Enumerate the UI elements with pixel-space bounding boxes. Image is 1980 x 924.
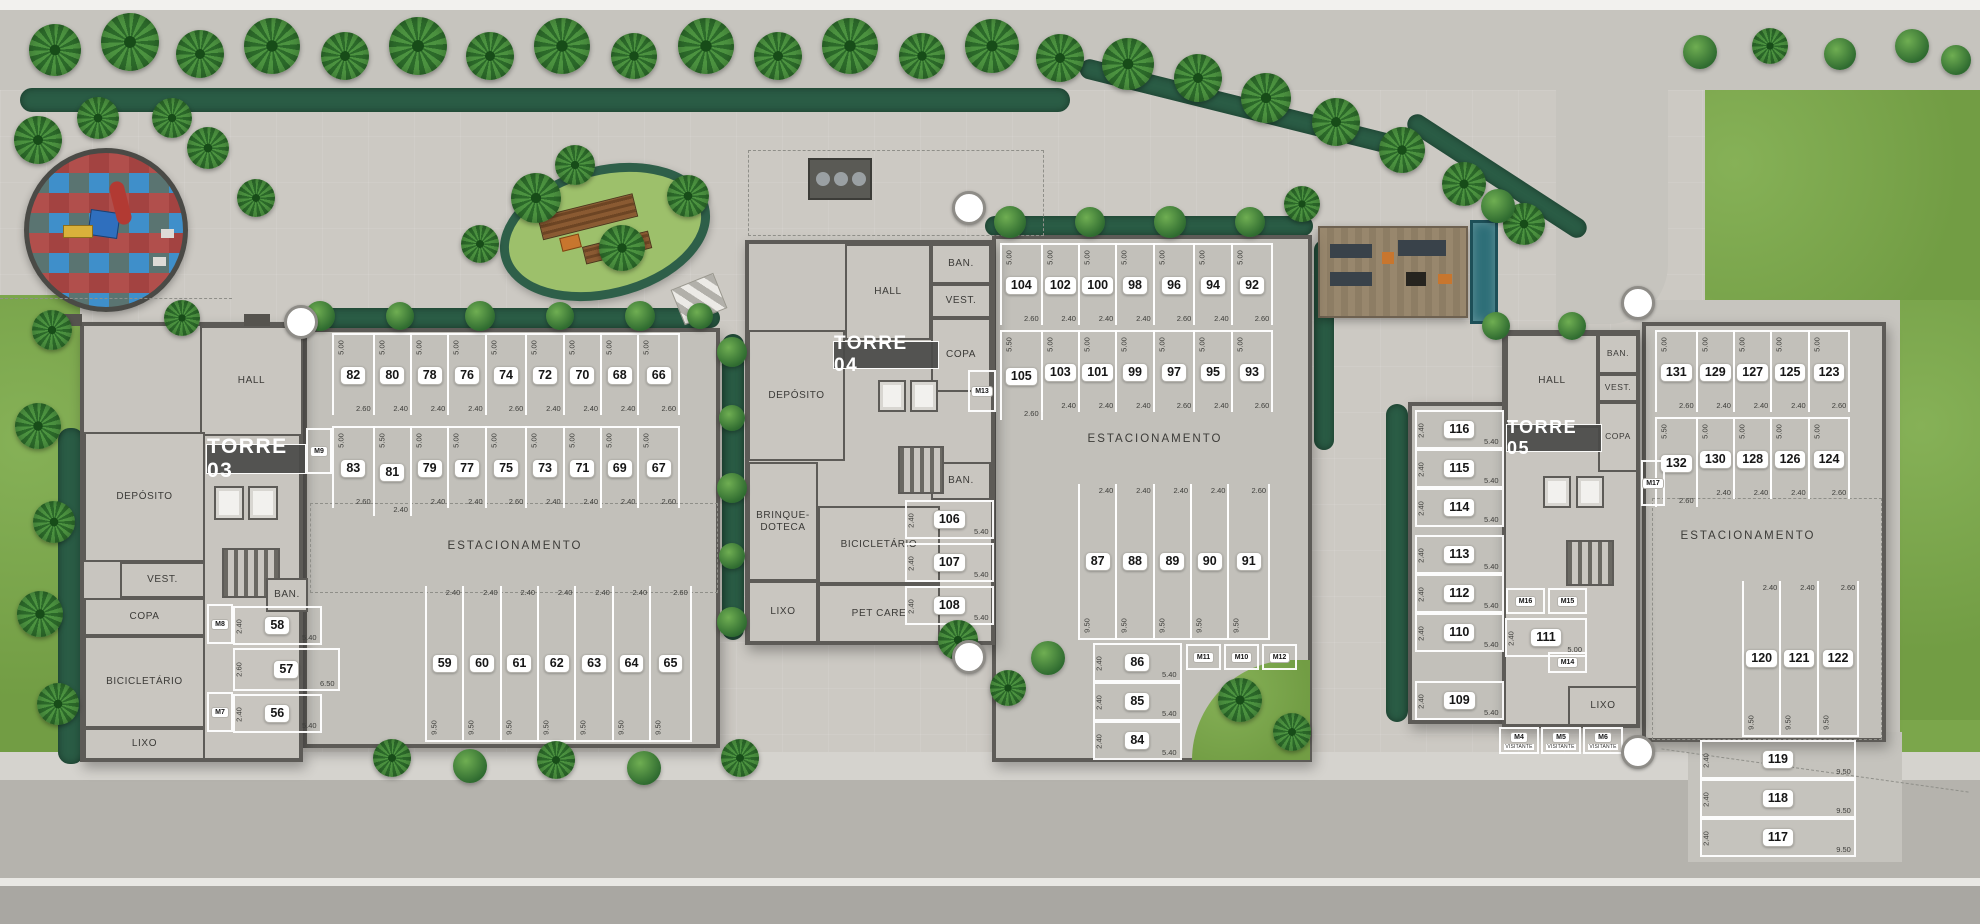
stall-depth-dim: 5.00 [1045,243,1054,273]
stall-width-dim: 2.60 [1255,401,1270,410]
stall-width-dim: 2.40 [1716,488,1731,497]
stall-height-dim: 2.40 [1417,493,1426,523]
palm-tree-icon [1241,73,1291,123]
parking-stall-91: 919.502.60 [1227,484,1270,640]
stall-depth-dim: 5.00 [1700,330,1709,360]
parking-stall-93: 935.002.60 [1231,330,1274,412]
parking-stall-98: 985.002.40 [1115,243,1154,325]
parking-stall-61: 619.502.40 [500,586,539,742]
stall-width-dim: 2.40 [1800,583,1815,592]
parking-stall-118: 1182.409.50 [1700,779,1856,818]
stall-width-dim: 2.40 [1763,583,1778,592]
parking-stall-80: 805.002.40 [373,333,412,415]
parking-stall-63: 639.502.40 [574,586,613,742]
south-road-edge [0,886,1980,924]
stall-depth-dim: 5.00 [1775,417,1784,447]
stall-length-dim: 5.40 [1484,515,1499,524]
stall-number: 130 [1699,450,1732,469]
parking-stall-102: 1025.002.40 [1041,243,1080,325]
parking-stall-86: 862.405.40 [1093,643,1182,682]
stall-depth-dim: 5.00 [605,333,614,363]
stall-number: 99 [1122,363,1148,382]
stall-depth-dim: 9.50 [1747,707,1756,737]
bush-icon [1824,38,1856,70]
parking-stall-64: 649.502.40 [612,586,651,742]
parking-stall-70: 705.002.40 [563,333,602,415]
stall-number: 113 [1443,545,1475,564]
moto-stall-number: M7 [211,707,229,718]
stall-number: 60 [469,654,495,673]
bush-icon [687,303,713,329]
room-label: BAN. [1607,349,1629,359]
sofa-icon [1398,240,1446,256]
stall-depth-dim: 5.00 [1198,243,1207,273]
visitante-label: VISITANTE [1504,744,1533,750]
circle-marker [1621,735,1655,769]
palm-tree-icon [822,18,878,74]
stall-width-dim: 2.60 [356,497,371,506]
parking-stall-117: 1172.409.50 [1700,818,1856,857]
stall-number: 57 [273,660,299,679]
t03-elevator [214,486,244,520]
moto-stall-M16: M16 [1506,588,1545,614]
stall-number: 74 [493,366,519,385]
stall-depth-dim: 5.00 [489,333,498,363]
room-label: VEST. [147,574,178,586]
t04-elevator [910,380,938,412]
bush-icon [717,607,747,637]
stall-length-dim: 5.40 [1484,562,1499,571]
room-label: HALL [874,286,901,298]
stall-length-dim: 9.50 [1836,806,1851,815]
palm-tree-icon [237,179,275,217]
stall-depth-dim: 5.00 [415,333,424,363]
bush-icon [717,337,747,367]
stall-height-dim: 2.40 [907,548,916,578]
t04-vest: VEST. [931,284,991,318]
parking-stall-68: 685.002.40 [600,333,639,415]
parking-stall-106: 1062.405.40 [905,500,994,539]
moto-stall-M8: M8 [207,604,233,644]
stall-depth-dim: 5.00 [1045,330,1054,360]
stall-depth-dim: 9.50 [467,712,476,742]
parking-stall-82: 825.002.60 [332,333,375,415]
stall-number: 126 [1774,450,1807,469]
stall-depth-dim: 5.00 [415,426,424,456]
water-feature [1470,220,1498,324]
stall-width-dim: 2.40 [621,497,636,506]
visitante-label: VISITANTE [1588,744,1617,750]
stall-number: 64 [619,654,645,673]
bench-icon [161,229,174,238]
stall-depth-dim: 5.00 [1157,330,1166,360]
parking-stall-107: 1072.405.40 [905,543,994,582]
stall-number: 78 [417,366,443,385]
stall-width-dim: 2.40 [1754,488,1769,497]
stall-height-dim: 2.40 [1417,454,1426,484]
stall-width-dim: 2.40 [1099,486,1114,495]
room-label: COPA [1605,432,1631,442]
palm-tree-icon [667,175,709,217]
stall-height-dim: 2.40 [1702,745,1711,775]
lounger-icon [1438,274,1452,284]
parking-stall-67: 675.002.60 [637,426,680,508]
parking-stall-71: 715.002.40 [563,426,602,508]
palm-tree-icon [1102,38,1154,90]
stall-number: 70 [569,366,595,385]
stall-number: 98 [1122,276,1148,295]
parking-stall-110: 1102.405.40 [1415,613,1504,652]
parking-stall-101: 1015.002.40 [1078,330,1117,412]
t03-vest: VEST. [120,562,205,598]
stall-width-dim: 2.40 [1099,314,1114,323]
palm-tree-icon [599,225,645,271]
stall-depth-dim: 5.00 [567,333,576,363]
parking-stall-116: 1162.405.40 [1415,410,1504,449]
moto-stall-M12: M12 [1262,644,1297,670]
moto-stall-number: M15 [1557,596,1579,607]
stall-number: 86 [1124,653,1150,672]
parking-stall-58: 582.405.40 [233,606,322,645]
moto-stall-M13: M13 [968,370,996,412]
parking-stall-85: 852.405.40 [1093,682,1182,721]
play-item-icon [559,233,582,251]
stall-width-dim: 2.60 [1177,401,1192,410]
palm-tree-icon [965,19,1019,73]
palm-tree-icon [511,173,561,223]
stall-number: 89 [1159,552,1185,571]
bush-icon [1031,641,1065,675]
stall-width-dim: 2.40 [1211,486,1226,495]
bush-icon [1482,312,1510,340]
moto-stall-M17: M17 [1641,460,1665,506]
stall-depth-dim: 5.00 [1083,243,1092,273]
palm-tree-icon [678,18,734,74]
stall-number: 67 [646,459,672,478]
stall-width-dim: 2.40 [431,404,446,413]
moto-stall-M5: M5VISITANTE [1541,727,1581,754]
stall-depth-dim: 9.50 [1120,610,1129,640]
palm-tree-icon [244,18,300,74]
room-label: LIXO [770,606,795,618]
parking-stall-123: 1235.002.60 [1808,330,1851,412]
parking-stall-122: 1229.502.60 [1817,581,1860,737]
palm-tree-icon [555,145,595,185]
stall-depth-dim: 5.00 [567,426,576,456]
table-icon [1406,272,1426,286]
parking-stall-57: 572.606.50 [233,648,340,691]
stall-number: 77 [454,459,480,478]
parking-stall-78: 785.002.40 [410,333,449,415]
stall-number: 103 [1044,363,1077,382]
palm-tree-icon [152,98,192,138]
stall-depth-dim: 9.50 [542,712,551,742]
stall-depth-dim: 5.00 [337,426,346,456]
stall-number: 76 [454,366,480,385]
room-label: DEPÓSITO [116,491,172,503]
stall-width-dim: 2.40 [1716,401,1731,410]
stall-number: 66 [646,366,672,385]
hedge-strip [300,308,720,328]
stall-number: 73 [532,459,558,478]
tower-name: TORRE 05 [1507,417,1601,459]
parking-stall-96: 965.002.60 [1153,243,1196,325]
room-label: DEPÓSITO [768,390,824,402]
stall-height-dim: 2.40 [1095,687,1104,717]
t03-lixo: LIXO [84,728,205,760]
stall-width-dim: 2.40 [1136,314,1151,323]
stall-number: 80 [379,366,405,385]
stall-depth-dim: 5.00 [1157,243,1166,273]
sofa-icon [1330,272,1372,286]
moto-stall-number: M17 [1642,478,1664,489]
stall-depth-dim: 5.00 [1120,330,1129,360]
stall-number: 68 [607,366,633,385]
stall-width-dim: 2.60 [509,404,524,413]
moto-stall-number: M12 [1269,652,1291,663]
palm-tree-icon [534,18,590,74]
stall-width-dim: 2.40 [546,404,561,413]
stall-depth-dim: 5.00 [1775,330,1784,360]
palm-tree-icon [176,30,224,78]
palm-tree-icon [1218,678,1262,722]
stall-number: 116 [1443,420,1475,439]
moto-stall-number: M8 [211,619,229,630]
stall-height-dim: 2.40 [1417,618,1426,648]
stall-width-dim: 2.40 [393,505,408,514]
stall-depth-dim: 9.50 [1195,610,1204,640]
moto-stall-M9: M9 [306,428,332,474]
stall-number: 90 [1197,552,1223,571]
stall-number: 62 [544,654,570,673]
room-label: BICICLETÁRIO [106,676,183,688]
stall-number: 84 [1124,731,1150,750]
palm-tree-icon [1442,162,1486,206]
parking-stall-77: 775.002.40 [447,426,486,508]
stall-length-dim: 9.50 [1836,767,1851,776]
stall-number: 91 [1236,552,1262,571]
t03-deposito: DEPÓSITO [84,432,205,562]
stall-width-dim: 2.40 [1099,401,1114,410]
t05-ban: BAN. [1598,334,1638,374]
stall-width-dim: 2.40 [546,497,561,506]
stall-width-dim: 2.40 [583,404,598,413]
palm-tree-icon [754,32,802,80]
stall-depth-dim: 5.00 [642,333,651,363]
t04-elevator [878,380,906,412]
parking-stall-76: 765.002.40 [447,333,486,415]
stall-depth-dim: 5.00 [1083,330,1092,360]
bush-icon [625,301,655,331]
parking-stall-119: 1192.409.50 [1700,740,1856,779]
parking-stall-60: 609.502.40 [462,586,501,742]
stall-width-dim: 2.40 [1754,401,1769,410]
stall-depth-dim: 5.00 [530,426,539,456]
stall-depth-dim: 9.50 [430,712,439,742]
bush-icon [1075,207,1105,237]
t03-tower-label: TORRE 03 [206,444,306,474]
stall-length-dim: 5.40 [1484,640,1499,649]
parking-stall-66: 665.002.60 [637,333,680,415]
palm-tree-icon [101,13,159,71]
moto-stall-number: M14 [1557,657,1579,668]
stall-number: 79 [417,459,443,478]
t04-deposito: DEPÓSITO [748,330,845,461]
t05-elevator [1576,476,1604,508]
stall-width-dim: 2.40 [468,497,483,506]
stall-number: 128 [1736,450,1769,469]
moto-stall-number: M5 [1552,732,1570,743]
stall-number: 81 [379,463,405,482]
room-label: COPA [946,349,976,361]
stall-height-dim: 2.40 [907,591,916,621]
stall-height-dim: 2.40 [1417,686,1426,716]
stall-depth-dim: 5.00 [642,426,651,456]
palm-tree-icon [389,17,447,75]
stall-height-dim: 2.40 [907,505,916,535]
parking-stall-109: 1092.405.40 [1415,681,1504,720]
stall-depth-dim: 5.00 [377,333,386,363]
south-road [0,780,1980,880]
right-lawn-side [1896,300,1980,720]
stall-number: 61 [506,654,532,673]
stall-width-dim: 2.40 [558,588,573,597]
parking-stall-108: 1082.405.40 [905,586,994,625]
parking-stall-126: 1265.002.40 [1770,417,1809,499]
room-label: LIXO [132,738,157,750]
t05-vest: VEST. [1598,374,1638,402]
room-label: BAN. [948,258,974,270]
bench-icon [63,225,93,238]
stall-depth-dim: 5.00 [1235,330,1244,360]
parking-stall-79: 795.002.40 [410,426,449,508]
bush-icon [627,751,661,785]
stall-number: 63 [581,654,607,673]
moto-stall-number: M9 [310,446,328,457]
palm-tree-icon [466,32,514,80]
room-label: PET CARE [852,608,907,620]
t04-hall: HALL [845,244,931,340]
stall-number: 95 [1200,363,1226,382]
stall-length-dim: 5.40 [302,721,317,730]
t04-stairs [898,446,944,494]
stall-number: 117 [1762,828,1794,847]
stall-length-dim: 5.40 [1162,709,1177,718]
bush-icon [719,543,745,569]
stall-width-dim: 2.40 [595,588,610,597]
stall-width-dim: 2.60 [509,497,524,506]
parking-stall-131: 1315.002.60 [1655,330,1698,412]
palm-tree-icon [1312,98,1360,146]
stall-number: 125 [1774,363,1807,382]
palm-tree-icon [77,97,119,139]
stall-number: 72 [532,366,558,385]
t03-copa: COPA [84,598,205,636]
stall-number: 87 [1085,552,1111,571]
stall-width-dim: 2.40 [1791,401,1806,410]
bush-icon [1558,312,1586,340]
stall-number: 94 [1200,276,1226,295]
stall-width-dim: 2.60 [1024,409,1039,418]
bush-icon [386,302,414,330]
stall-width-dim: 2.40 [393,404,408,413]
circle-marker [1621,286,1655,320]
palm-tree-icon [990,670,1026,706]
stall-width-dim: 2.60 [661,497,676,506]
bush-icon [994,206,1026,238]
bush-icon [453,749,487,783]
stall-length-dim: 5.40 [1162,748,1177,757]
stall-height-dim: 2.40 [1417,415,1426,445]
stall-number: 121 [1783,649,1816,668]
moto-stall-M11: M11 [1186,644,1221,670]
bench-icon [244,314,270,326]
moto-stall-number: M4 [1510,732,1528,743]
t03-elevator [248,486,278,520]
bush-icon [1941,45,1971,75]
stall-width-dim: 2.40 [1136,401,1151,410]
stall-height-dim: 2.40 [235,699,244,729]
bush-icon [465,301,495,331]
palm-tree-icon [187,127,229,169]
stall-number: 131 [1660,363,1693,382]
lounger-icon [1382,252,1394,264]
bush-icon [719,405,745,431]
circle-marker [952,640,986,674]
stall-number: 96 [1161,276,1187,295]
stall-depth-dim: 9.50 [1083,610,1092,640]
parking-stall-105: 1055.502.60 [1000,330,1043,420]
palm-tree-icon [1273,713,1311,751]
tower-name: TORRE 04 [834,333,938,377]
south-curb [0,878,1980,886]
moto-stall-M6: M6VISITANTE [1583,727,1623,754]
stall-length-dim: 6.50 [320,679,335,688]
aisle-dashed-outline [310,503,718,593]
driveway-east [1556,84,1668,324]
stall-number: 123 [1813,363,1846,382]
palm-tree-icon [321,32,369,80]
stall-depth-dim: 9.50 [1784,707,1793,737]
stall-width-dim: 2.40 [1136,486,1151,495]
parking-stall-120: 1209.502.40 [1742,581,1781,737]
stall-length-dim: 5.40 [1484,437,1499,446]
stall-depth-dim: 5.00 [605,426,614,456]
stall-number: 102 [1044,276,1077,295]
t05-copa: COPA [1598,402,1638,472]
room-label: HALL [238,375,265,387]
stall-depth-dim: 5.00 [1005,243,1014,273]
stall-number: 85 [1124,692,1150,711]
stall-height-dim: 2.40 [1417,540,1426,570]
stall-depth-dim: 5.00 [1738,330,1747,360]
parking-stall-124: 1245.002.60 [1808,417,1851,499]
stall-width-dim: 2.60 [1024,314,1039,323]
stall-height-dim: 2.40 [1417,579,1426,609]
stall-width-dim: 2.40 [1173,486,1188,495]
moto-stall-M14: M14 [1548,652,1587,673]
site-plan: HALL DEPÓSITO VEST. COPA BICICLETÁRIO LI… [0,0,1980,924]
parking-stall-113: 1132.405.40 [1415,535,1504,574]
room-label: HALL [1538,375,1565,387]
stall-number: 56 [264,704,290,723]
palm-tree-icon [33,501,75,543]
stall-width-dim: 2.40 [621,404,636,413]
stall-number: 58 [264,616,290,635]
room-label: BAN. [948,475,974,487]
stall-width-dim: 2.40 [1791,488,1806,497]
stall-length-dim: 5.40 [1484,708,1499,717]
